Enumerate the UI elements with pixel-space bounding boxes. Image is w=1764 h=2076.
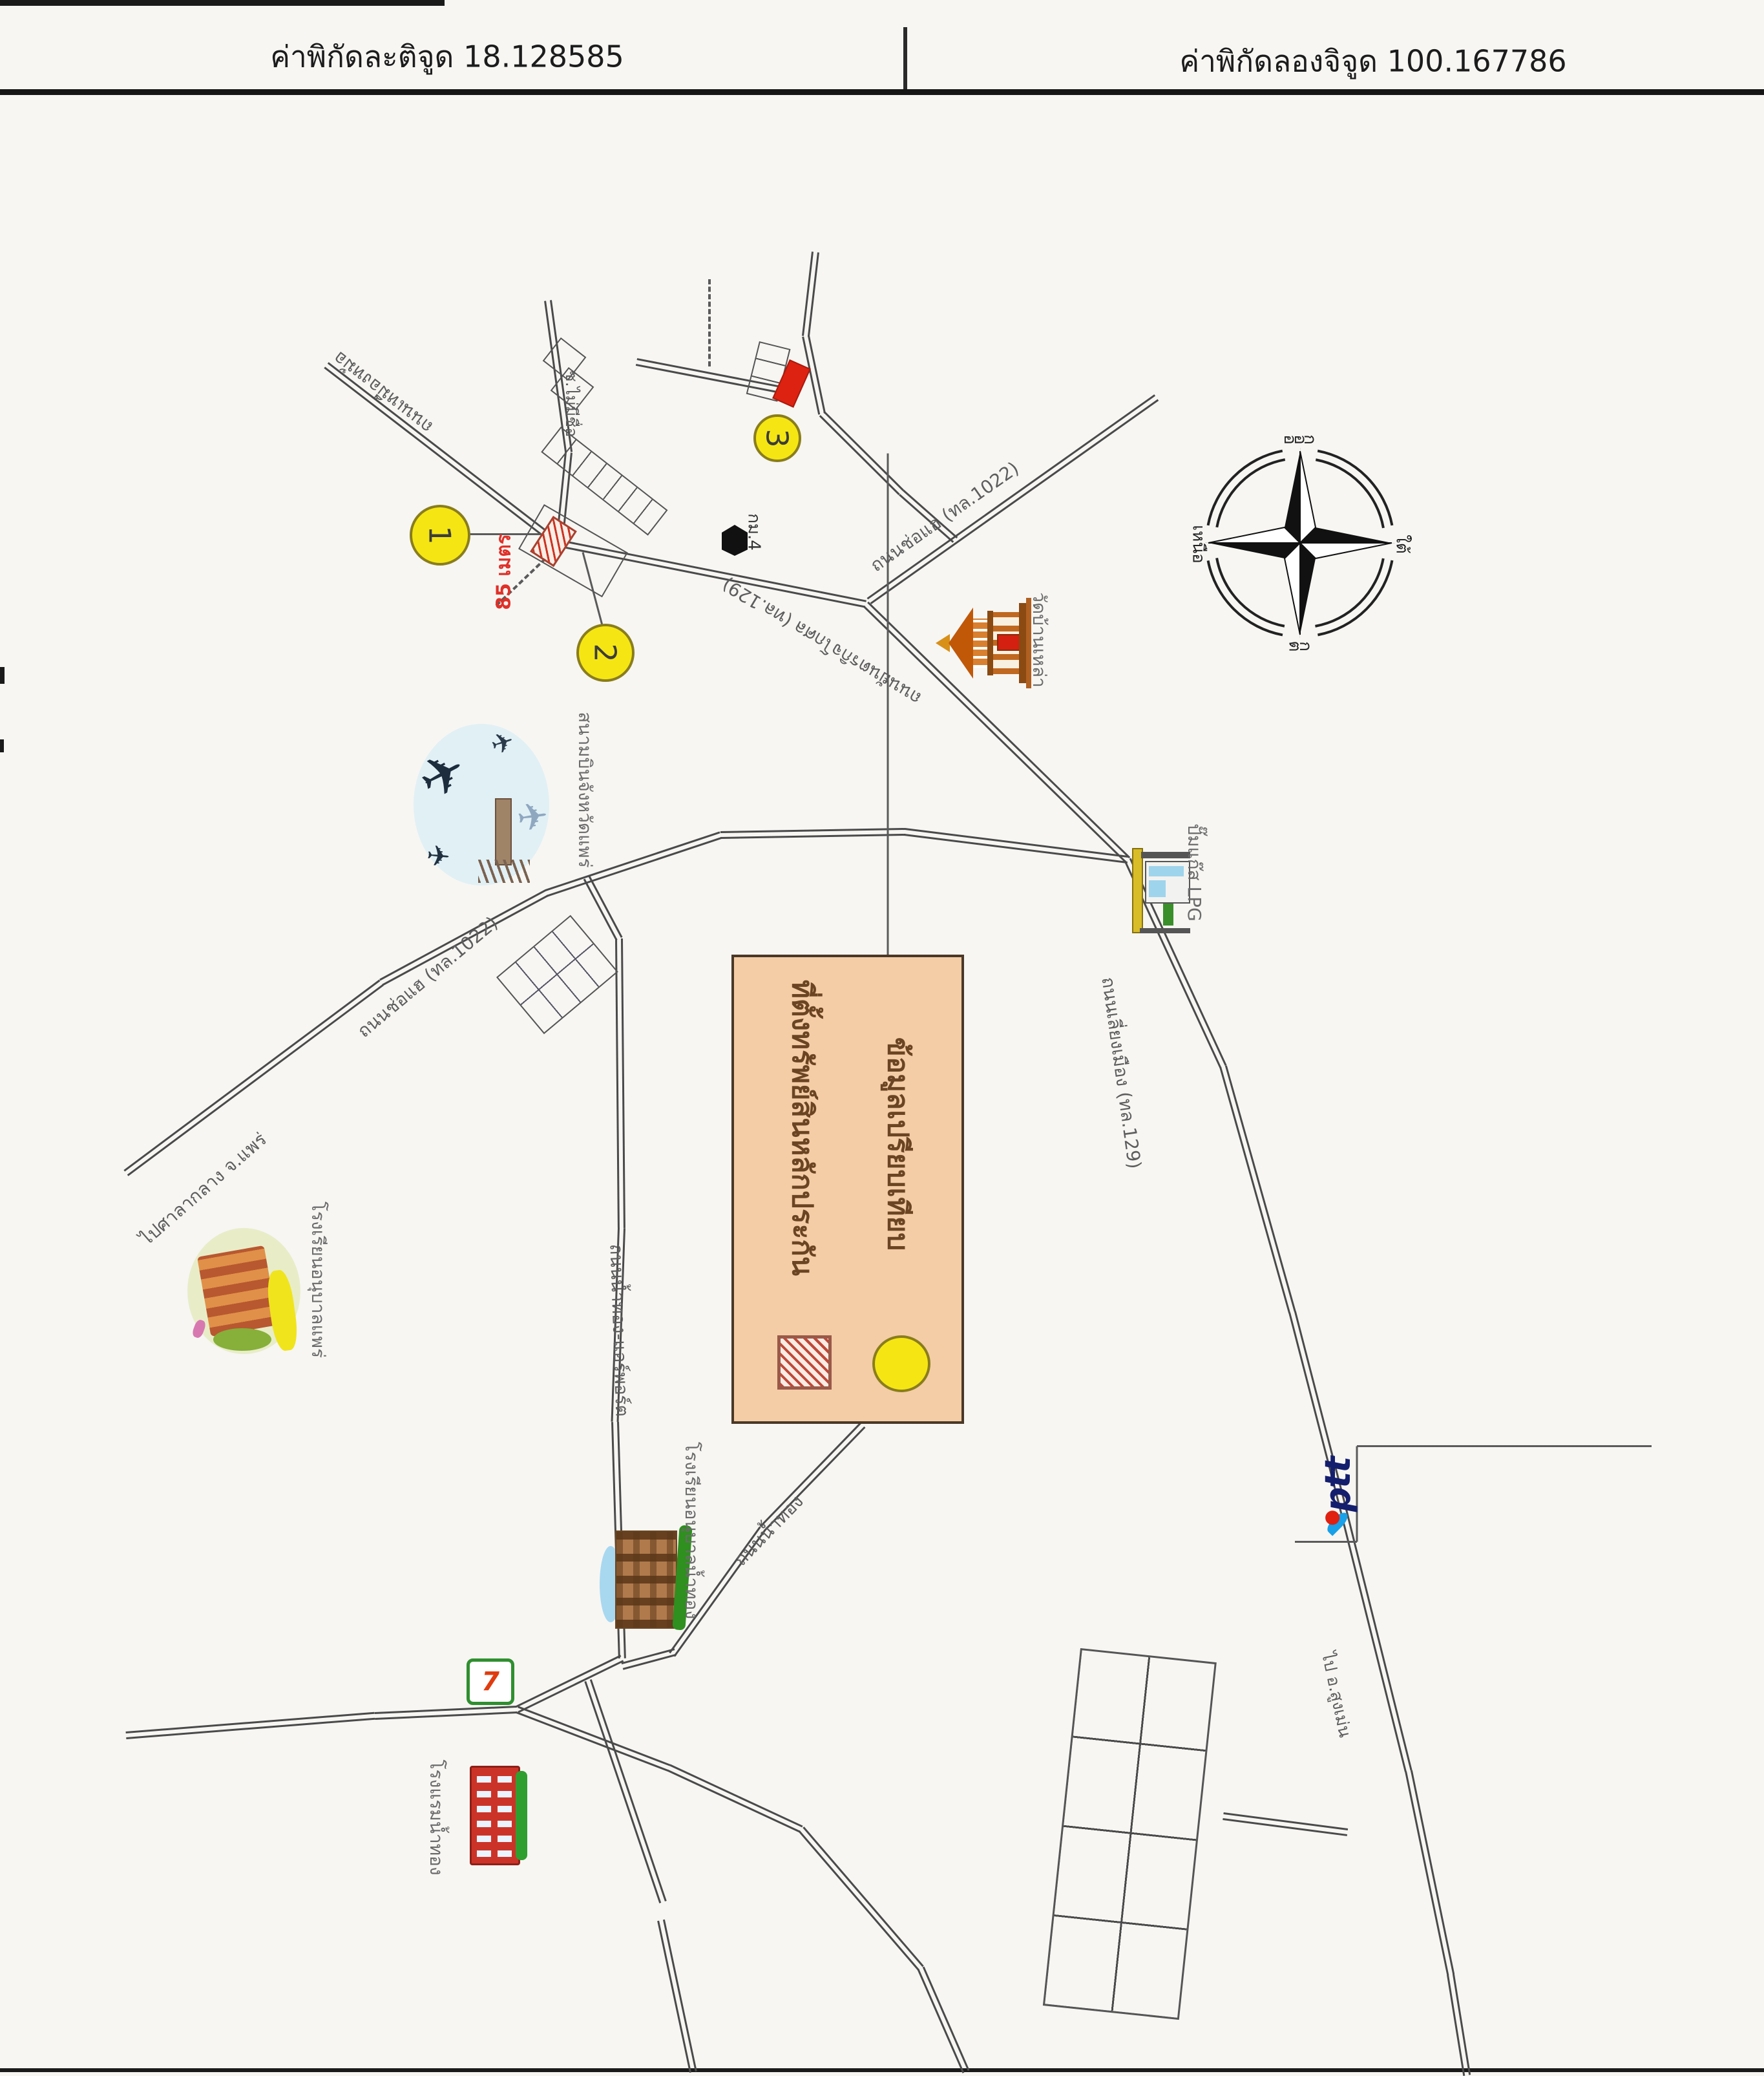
direction-label-sungmen: ไป อ.สูงเม่น xyxy=(1314,1649,1358,1740)
airplane-icon: ✈ xyxy=(514,793,552,841)
road-segment xyxy=(583,876,623,940)
land-plot-grid xyxy=(496,915,618,1035)
road-label-liangmueang: ถนนเลี่ยงเมือง (ทล.129) xyxy=(1093,975,1148,1170)
road-segment xyxy=(657,1920,697,2073)
road-segment xyxy=(516,1706,671,1772)
road-segment xyxy=(1219,1065,1296,1313)
road-segment xyxy=(918,1967,970,2073)
compass-east-label: ออก xyxy=(1285,427,1316,453)
ptt-wordmark: ptt xyxy=(1318,1457,1358,1512)
hotel-label: โรงแรมน้ำทอง xyxy=(422,1759,450,1875)
legend-hatch-symbol xyxy=(777,1335,832,1390)
legend-circle-symbol xyxy=(872,1335,930,1392)
airplane-icon: ✈ xyxy=(425,839,452,874)
map-document: ค่าพิกัดละติจูด 18.128585 ค่าพิกัดลองจิจ… xyxy=(0,0,1764,2075)
school-namthong-label: โรงเรียนอนุบาลน้ำทอง xyxy=(677,1442,706,1619)
tower-base xyxy=(478,860,530,883)
dashed-road xyxy=(708,279,711,366)
km-marker-label: กม.4 xyxy=(741,513,768,551)
scan-edge-bottom xyxy=(0,2068,1764,2072)
temple-label: วัดบ้านเหล่า xyxy=(1025,592,1053,687)
lpg-window xyxy=(1149,866,1184,876)
legend-comparison-label: ข้อมูลเปรียบเทียบ xyxy=(876,1037,921,1251)
road-label-namthong: ถนนน้ำทอง xyxy=(728,1488,810,1573)
road-segment xyxy=(621,1648,676,1670)
lpg-window xyxy=(1149,880,1166,897)
road-segment xyxy=(1405,1770,1454,1976)
land-plot-grid xyxy=(1043,1648,1217,2020)
temple-icon xyxy=(936,578,1033,708)
road-label-namthong-airport: ถนนน้ำทอง-แอร์พอร์ต xyxy=(602,1244,636,1417)
control-tower-icon xyxy=(495,798,512,865)
lpg-sign-pole xyxy=(1132,848,1143,933)
header-rule xyxy=(0,89,1764,95)
road-segment xyxy=(1447,1974,1471,2076)
school-phrae-building xyxy=(197,1245,278,1337)
road-segment xyxy=(819,411,904,495)
plot-boundary xyxy=(1357,1445,1652,1447)
lpg-pump xyxy=(1163,904,1173,926)
road-segment xyxy=(584,1679,666,1903)
road-segment xyxy=(375,1706,517,1720)
ptt-logo: ptt xyxy=(1307,1457,1369,1529)
road-segment xyxy=(515,1655,624,1713)
distance-label: 85 เมตร xyxy=(489,534,520,610)
road-segment xyxy=(615,938,625,1228)
road-label-chohae-left: ถนนช่อแฮ (ทล.1022) xyxy=(351,909,504,1044)
scan-edge-top xyxy=(0,0,445,6)
compass-west-label: ตก xyxy=(1290,633,1311,660)
legend-leader-line xyxy=(887,454,889,957)
seven-eleven-glyph: 7 xyxy=(481,1667,499,1697)
road-segment xyxy=(667,1764,803,1833)
comparison-marker-1: 1 xyxy=(410,505,470,566)
scan-mark xyxy=(0,667,5,684)
compass-rose xyxy=(1203,446,1397,640)
scan-mark xyxy=(0,739,4,752)
lpg-label: ปั๊มแก๊ส LPG xyxy=(1180,823,1208,921)
compass-north-label: เหนือ xyxy=(1186,525,1212,563)
hotel-building-icon xyxy=(470,1766,520,1865)
comparison-marker-3: 3 xyxy=(753,414,801,462)
comparison-marker-2: 2 xyxy=(576,624,635,682)
road-segment xyxy=(802,251,819,337)
plot-boundary xyxy=(1295,1541,1357,1543)
legend-property-label: ที่ตั้งทรัพย์สินหลักประกัน xyxy=(780,980,825,1276)
road-label-mueangmo: ถนนเหมืองหม้อ xyxy=(327,344,439,440)
school-phrae-trees xyxy=(213,1328,271,1351)
road-segment xyxy=(126,1712,375,1739)
compass-south-label: ใต้ xyxy=(1389,535,1416,554)
header-divider xyxy=(903,27,907,90)
road-segment xyxy=(1223,1812,1348,1836)
hotel-trees xyxy=(516,1771,527,1860)
road-label-soi: ซ.ไม่มีชื่อ xyxy=(558,371,584,437)
lpg-base xyxy=(1140,928,1190,933)
latitude-value: ค่าพิกัดละติจูด 18.128585 xyxy=(270,34,624,81)
longitude-value: ค่าพิกัดลองจิจูด 100.167786 xyxy=(1179,38,1566,85)
school-namthong-building xyxy=(615,1531,677,1629)
school-phrae-label: โรงเรียนอนุบาลแพร่ xyxy=(304,1202,332,1358)
airport-label: สนามบินจังหวัดแพร่ xyxy=(571,712,599,867)
road-segment xyxy=(798,1827,923,1971)
seven-eleven-icon: 7 xyxy=(467,1658,514,1705)
legend-box xyxy=(731,955,964,1424)
road-segment xyxy=(720,828,905,839)
